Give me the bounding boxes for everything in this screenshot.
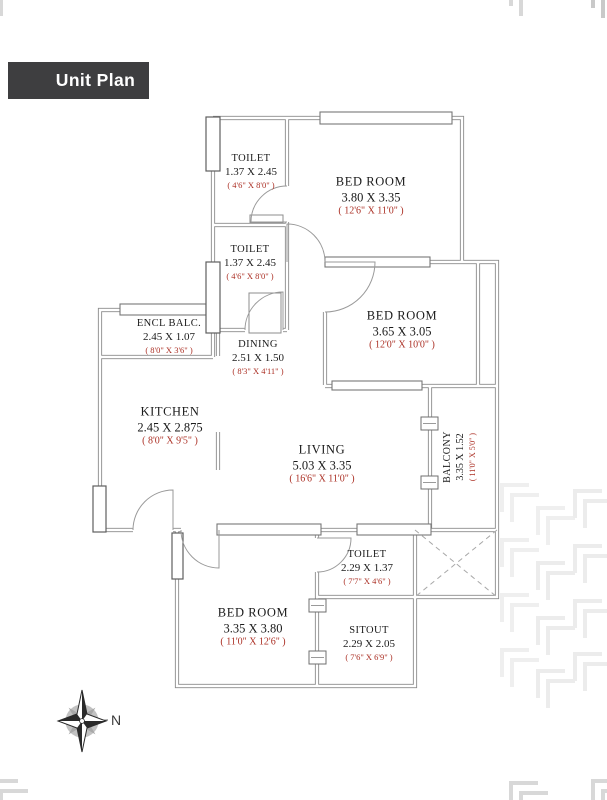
room-name: TOILET [225,152,277,165]
room-label-bedroom-3: BED ROOM 3.35 X 3.80 ( 11'0" X 12'6" ) [218,605,288,650]
room-dimensions-metric: 1.37 X 2.45 [224,256,276,270]
room-label-dining: DINING 2.51 X 1.50 ( 8'3" X 4'11" ) [232,338,284,376]
room-label-encl-balc: ENCL BALC. 2.45 X 1.07 ( 8'0" X 3'6" ) [137,317,201,355]
room-dimensions-metric: 5.03 X 3.35 [289,458,354,474]
room-name: BED ROOM [336,174,406,190]
room-name: TOILET [224,243,276,256]
room-name: BALCONY [442,431,455,483]
room-name: KITCHEN [137,404,202,420]
room-dimensions-metric: 2.51 X 1.50 [232,351,284,365]
room-dimensions-metric: 3.65 X 3.05 [367,324,437,340]
room-dimensions-imperial: ( 8'3" X 4'11" ) [232,365,284,376]
room-dimensions-imperial: ( 11'0" X 12'6" ) [218,637,288,650]
room-dimensions-metric: 1.37 X 2.45 [225,165,277,179]
room-dimensions-imperial: ( 4'6" X 8'0" ) [224,270,276,281]
unit-plan-page: Unit Plan TOILET 1.37 X 2.45 ( 4'6" X 8'… [0,0,607,800]
room-name: ENCL BALC. [137,317,201,330]
room-dimensions-metric: 2.29 X 2.05 [343,637,395,651]
room-dimensions-imperial: ( 4'6" X 8'0" ) [225,179,277,190]
room-dimensions-imperial: ( 11'0" X 5'0" ) [468,431,478,483]
room-dimensions-metric: 2.45 X 1.07 [137,330,201,344]
room-dimensions-metric: 2.45 X 2.875 [137,420,202,436]
room-label-toilet-2: TOILET 1.37 X 2.45 ( 4'6" X 8'0" ) [224,243,276,281]
floor-plan-drawing [0,0,607,800]
walls [100,118,497,686]
compass-north-label: N [111,712,121,728]
room-label-living: LIVING 5.03 X 3.35 ( 16'6" X 11'0" ) [289,442,354,487]
room-dimensions-imperial: ( 7'6" X 6'9" ) [343,651,395,662]
room-dimensions-imperial: ( 8'0" X 3'6" ) [137,344,201,355]
page-title: Unit Plan [8,62,149,99]
room-dimensions-metric: 3.35 X 3.80 [218,621,288,637]
room-name: SITOUT [343,624,395,637]
room-name: BED ROOM [218,605,288,621]
room-dimensions-imperial: ( 8'0" X 9'5" ) [137,436,202,449]
room-dimensions-metric: 2.29 X 1.37 [341,561,393,575]
room-name: TOILET [341,548,393,561]
room-dimensions-metric: 3.80 X 3.35 [336,190,406,206]
room-dimensions-imperial: ( 12'6" X 11'0" ) [336,206,406,219]
room-dimensions-imperial: ( 7'7" X 4'6" ) [341,575,393,586]
room-name: BED ROOM [367,308,437,324]
room-dimensions-imperial: ( 12'0" X 10'0" ) [367,340,437,353]
room-name: DINING [232,338,284,351]
room-label-bedroom-1: BED ROOM 3.80 X 3.35 ( 12'6" X 11'0" ) [336,174,406,219]
room-label-kitchen: KITCHEN 2.45 X 2.875 ( 8'0" X 9'5" ) [137,404,202,449]
compass-rose-icon [55,690,109,752]
room-label-sitout: SITOUT 2.29 X 2.05 ( 7'6" X 6'9" ) [343,624,395,662]
room-label-toilet-3: TOILET 2.29 X 1.37 ( 7'7" X 4'6" ) [341,548,393,586]
shaft-cross [415,530,497,597]
room-dimensions-metric: 3.35 X 1.52 [455,431,468,483]
room-name: LIVING [289,442,354,458]
room-label-toilet-1: TOILET 1.37 X 2.45 ( 4'6" X 8'0" ) [225,152,277,190]
room-label-balcony: BALCONY 3.35 X 1.52 ( 11'0" X 5'0" ) [442,431,478,483]
room-label-bedroom-2: BED ROOM 3.65 X 3.05 ( 12'0" X 10'0" ) [367,308,437,353]
room-dimensions-imperial: ( 16'6" X 11'0" ) [289,474,354,487]
